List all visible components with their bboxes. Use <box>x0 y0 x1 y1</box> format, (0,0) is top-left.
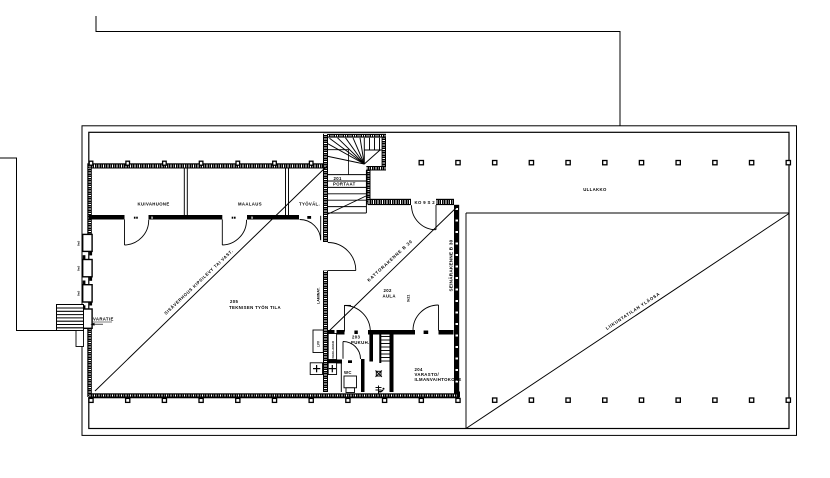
svg-text:AULA: AULA <box>383 293 396 298</box>
svg-text:LAMINAT.: LAMINAT. <box>317 287 321 304</box>
svg-text:205: 205 <box>230 299 238 304</box>
svg-text:202: 202 <box>384 288 392 293</box>
svg-text:MAALAUS: MAALAUS <box>238 202 262 207</box>
svg-text:KO 9 S 2: KO 9 S 2 <box>415 200 436 205</box>
svg-text:9: 9 <box>251 216 253 220</box>
svg-text:KUIVAHUONE: KUIVAHUONE <box>138 202 170 207</box>
svg-text:9x21: 9x21 <box>407 294 411 302</box>
svg-text:9x6: 9x6 <box>76 241 80 246</box>
svg-text:ULLAKKO: ULLAKKO <box>583 187 607 192</box>
svg-text:9: 9 <box>151 216 153 220</box>
svg-text:PORTAAT: PORTAAT <box>333 182 356 187</box>
svg-text:9x21: 9x21 <box>322 256 326 264</box>
svg-text:PUKUH.: PUKUH. <box>351 340 370 345</box>
svg-text:VARATIE: VARATIE <box>93 317 114 322</box>
svg-text:9x6: 9x6 <box>76 266 80 271</box>
svg-text:TEKNISEN TYÖN TILA: TEKNISEN TYÖN TILA <box>229 305 281 310</box>
svg-text:9x6: 9x6 <box>76 291 80 296</box>
svg-text:ILMANVAIHTOKONE: ILMANVAIHTOKONE <box>415 377 462 382</box>
svg-text:NAULAKKO: NAULAKKO <box>331 340 335 358</box>
svg-text:LVV: LVV <box>317 340 321 347</box>
svg-text:TYÖVÄL.: TYÖVÄL. <box>299 202 320 207</box>
svg-text:WC: WC <box>344 370 352 375</box>
svg-text:SEINÄRAKENNE B 30: SEINÄRAKENNE B 30 <box>448 239 454 291</box>
svg-text:201: 201 <box>334 176 342 181</box>
